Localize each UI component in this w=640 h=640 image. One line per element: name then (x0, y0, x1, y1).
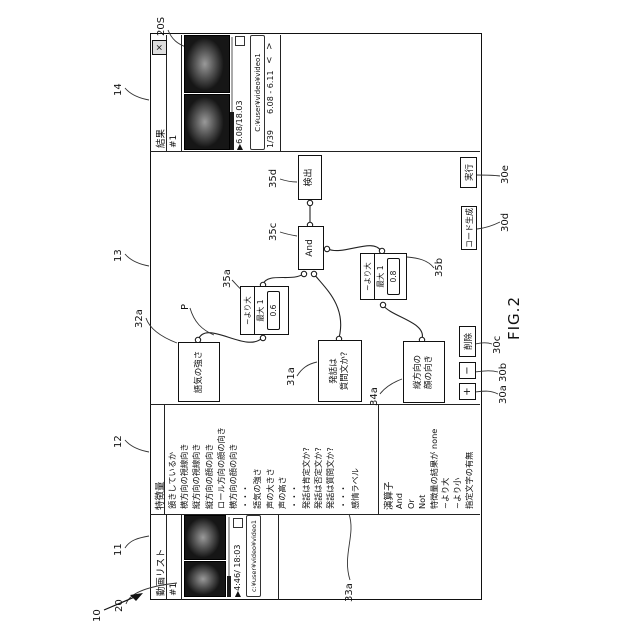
player-option-icon[interactable] (233, 518, 243, 528)
progress-fill (227, 576, 231, 597)
result-path-field[interactable]: C:¥user¥video¥video1 (250, 35, 265, 150)
node-label-line2: 顔の向き (424, 355, 435, 389)
overall-arrow (104, 593, 143, 610)
threshold-value-field[interactable]: 0.8 (387, 258, 400, 295)
node-label-line1: 発話は (329, 358, 340, 384)
node-is-question[interactable]: 発話は 質問文か? (318, 340, 362, 402)
node-label: 検出 (304, 169, 315, 187)
video-path-field[interactable]: c:¥user¥video¥video1 (246, 515, 261, 597)
delete-button[interactable]: 削除 (459, 326, 476, 357)
node-max-label: 最大 1 (256, 287, 266, 334)
patent-figure-fig2: 動画リスト #1 ▶4:46/ 18:03 c:¥user¥video¥vide… (0, 0, 640, 640)
node-label: 語気の強さ (194, 351, 205, 394)
node-greater-than-2[interactable]: ~より大 最大 1 0.8 (360, 253, 407, 300)
player-option-icon[interactable] (235, 36, 245, 46)
node-label-line2: 質問文か? (340, 352, 351, 391)
rotated-canvas: 動画リスト #1 ▶4:46/ 18:03 c:¥user¥video¥vide… (0, 0, 640, 640)
figure-lines (0, 0, 640, 640)
node-label-line1: 縦方向の (413, 355, 424, 389)
result-thumbnail[interactable] (184, 35, 230, 93)
node-op-label: ~より大 (361, 254, 375, 299)
video-thumbnail[interactable] (184, 561, 226, 597)
node-face-direction[interactable]: 縦方向の 顔の向き (403, 341, 445, 403)
node-max-label: 最大 1 (376, 254, 386, 299)
video-thumbnail[interactable] (184, 515, 226, 560)
add-node-button[interactable]: + (459, 383, 476, 400)
node-and[interactable]: And (298, 226, 324, 270)
node-label: And (305, 239, 316, 257)
remove-node-button[interactable]: − (459, 362, 476, 379)
node-greater-than-1[interactable]: ~より大 最大 1 0.6 (240, 286, 289, 335)
code-generate-button[interactable]: コード生成 (461, 206, 477, 250)
result-thumbnail[interactable] (184, 94, 230, 150)
threshold-value-field[interactable]: 0.6 (267, 291, 280, 330)
node-tone-strength[interactable]: 語気の強さ (178, 342, 220, 402)
node-op-label: ~より大 (241, 287, 255, 334)
close-icon[interactable]: × (152, 40, 167, 55)
run-button[interactable]: 実行 (460, 157, 477, 188)
progress-fill (230, 112, 234, 150)
leader-lines (125, 30, 500, 604)
node-detect[interactable]: 検出 (298, 155, 322, 200)
